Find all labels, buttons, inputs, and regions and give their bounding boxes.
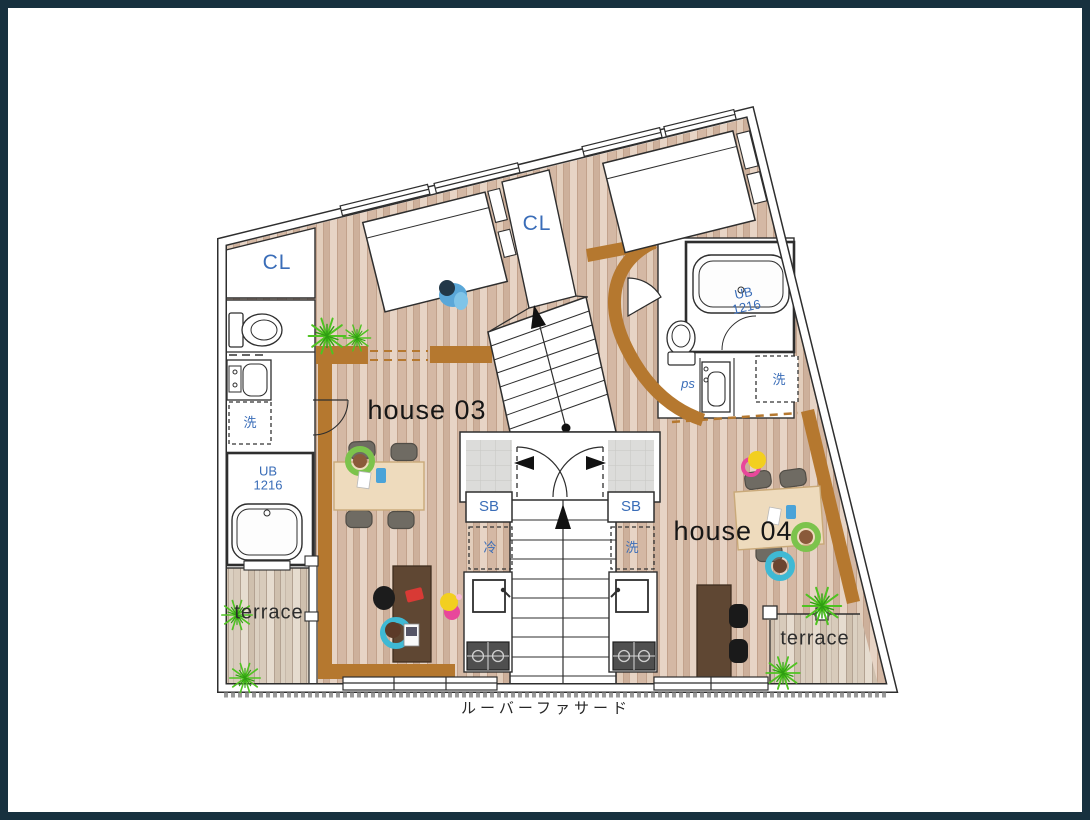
pipe-space-label: ps bbox=[681, 377, 695, 391]
stair-lower-flight bbox=[510, 500, 616, 688]
fridge-label-house03: 冷 bbox=[483, 541, 496, 555]
fridge-label-house04: 洗 bbox=[625, 541, 638, 555]
ub-size: 1216 bbox=[254, 477, 283, 492]
office-chair bbox=[729, 639, 748, 663]
unit-bath-label-house03: UB 1216 bbox=[254, 464, 283, 491]
terrace-label-house04: terrace bbox=[780, 629, 849, 650]
vanity-house03 bbox=[227, 355, 271, 400]
desk bbox=[697, 585, 731, 681]
genkan-tile-house03 bbox=[466, 440, 512, 498]
closet-label-central: CL bbox=[523, 213, 552, 235]
tablet bbox=[376, 468, 386, 483]
toilet-house03 bbox=[229, 313, 282, 347]
louver-facade-label: ルーバーファサード bbox=[461, 701, 631, 717]
unit-bath-label-house04: UB 1216 bbox=[728, 284, 762, 317]
vanity-house04 bbox=[702, 362, 730, 412]
kitchen-house04 bbox=[609, 572, 657, 672]
terrace-label-house03: terrace bbox=[234, 603, 303, 624]
unit-name-house04: house 04 bbox=[673, 517, 792, 545]
paper bbox=[357, 471, 371, 489]
washer-label-house03: 洗 bbox=[243, 416, 256, 430]
laptop-screen bbox=[406, 627, 417, 636]
kitchen-house03 bbox=[464, 572, 512, 672]
office-chair bbox=[729, 604, 748, 628]
washer-label-house04: 洗 bbox=[772, 373, 785, 387]
office-chair bbox=[373, 586, 395, 610]
unit-name-house03: house 03 bbox=[367, 396, 486, 424]
shoe-box-label-house04: SB bbox=[621, 499, 641, 515]
bathtub bbox=[232, 504, 302, 560]
floor-plan-drawing bbox=[0, 0, 1090, 820]
kitchen-sink bbox=[616, 580, 648, 612]
kitchen-sink bbox=[473, 580, 505, 612]
closet-label-house03: CL bbox=[263, 252, 292, 274]
toilet-house04 bbox=[667, 321, 695, 365]
shoe-box-label-house03: SB bbox=[479, 499, 499, 515]
genkan-tile-house04 bbox=[608, 440, 654, 498]
floor-plan-page: CL CL house 03 house 04 UB 1216 UB 1216 … bbox=[0, 0, 1090, 820]
stove bbox=[467, 642, 509, 670]
stove bbox=[613, 642, 655, 670]
